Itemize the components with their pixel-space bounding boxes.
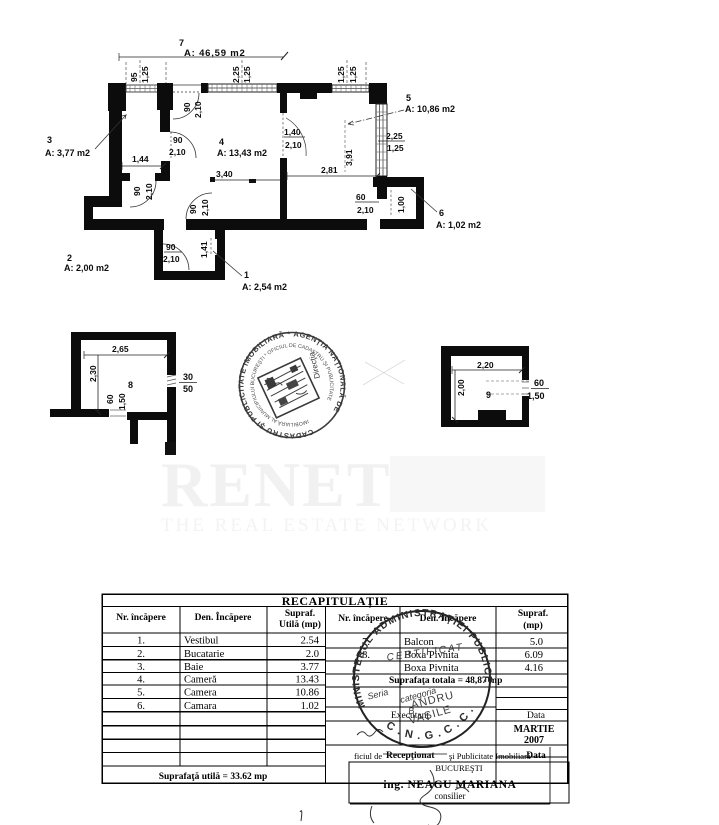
svg-text:90: 90	[182, 102, 192, 112]
svg-text:Camera: Camera	[184, 688, 217, 699]
svg-text:A: 2,00 m2: A: 2,00 m2	[64, 263, 109, 273]
svg-text:6.: 6.	[137, 701, 145, 712]
svg-text:8: 8	[128, 380, 133, 390]
svg-text:1.02: 1.02	[301, 701, 319, 712]
svg-text:2: 2	[67, 253, 72, 263]
svg-text:Data: Data	[527, 711, 546, 721]
svg-text:2.0: 2.0	[306, 649, 319, 660]
svg-text:4.16: 4.16	[525, 663, 543, 674]
svg-text:5: 5	[406, 93, 411, 103]
svg-text:2,20: 2,20	[477, 360, 494, 370]
svg-text:consilier: consilier	[435, 791, 466, 801]
svg-text:şi Publicitate Imobiliară: şi Publicitate Imobiliară	[449, 751, 531, 761]
svg-text:2,00: 2,00	[456, 379, 466, 396]
svg-text:2.54: 2.54	[301, 636, 320, 647]
svg-text:50: 50	[183, 384, 193, 394]
svg-text:1,25: 1,25	[387, 143, 404, 153]
svg-text:90: 90	[132, 186, 142, 196]
svg-text:Supraf.: Supraf.	[518, 609, 548, 619]
svg-text:ficiul de: ficiul de	[354, 751, 382, 761]
svg-text:90: 90	[188, 204, 198, 214]
svg-text:Vestibul: Vestibul	[184, 636, 219, 647]
svg-text:13.43: 13.43	[295, 675, 319, 686]
svg-text:2,25: 2,25	[231, 66, 241, 83]
svg-text:4.: 4.	[137, 675, 145, 686]
svg-text:Suprafaţă utilă = 33.62 mp: Suprafaţă utilă = 33.62 mp	[159, 772, 268, 782]
svg-text:10.86: 10.86	[295, 688, 319, 699]
svg-text:3,40: 3,40	[216, 169, 233, 179]
svg-text:1,44: 1,44	[132, 154, 149, 164]
svg-text:3: 3	[47, 135, 52, 145]
svg-text:Utilă (mp): Utilă (mp)	[279, 619, 321, 630]
svg-text:7: 7	[179, 38, 184, 48]
svg-text:Boxa Pivnita: Boxa Pivnita	[404, 663, 459, 674]
svg-text:2,10: 2,10	[169, 147, 186, 157]
svg-text:A: 3,77 m2: A: 3,77 m2	[45, 148, 90, 158]
svg-text:Bucatarie: Bucatarie	[184, 649, 225, 660]
svg-text:3,91: 3,91	[344, 149, 354, 166]
svg-text:BUCUREŞTI: BUCUREŞTI	[435, 763, 482, 773]
svg-text:2,30: 2,30	[88, 365, 98, 382]
svg-text:3.: 3.	[137, 662, 145, 673]
svg-text:A: 2,54 m2: A: 2,54 m2	[242, 282, 287, 292]
svg-text:Supraf.: Supraf.	[285, 609, 315, 619]
svg-text:ing. NEAGU MARIANA: ing. NEAGU MARIANA	[383, 779, 516, 791]
svg-text:2,10: 2,10	[357, 205, 374, 215]
svg-text:1: 1	[244, 270, 249, 280]
svg-text:1,25: 1,25	[140, 66, 150, 83]
svg-text:2,81: 2,81	[321, 165, 338, 175]
svg-text:95: 95	[129, 72, 139, 82]
svg-text:4: 4	[219, 137, 224, 147]
svg-text:A: 1,02 m2: A: 1,02 m2	[436, 220, 481, 230]
svg-text:1,41: 1,41	[199, 241, 209, 258]
svg-text:60: 60	[356, 192, 366, 202]
svg-text:6: 6	[439, 208, 444, 218]
svg-text:2,10: 2,10	[163, 254, 180, 264]
svg-text:Den. Încăpere: Den. Încăpere	[195, 611, 252, 623]
svg-text:1,50: 1,50	[527, 391, 545, 401]
svg-text:THE REAL ESTATE NETWORK: THE REAL ESTATE NETWORK	[161, 515, 492, 536]
svg-text:2007: 2007	[524, 735, 544, 746]
svg-text:(mp): (mp)	[523, 620, 543, 631]
svg-text:1.: 1.	[137, 636, 145, 647]
svg-text:6.09: 6.09	[525, 650, 543, 661]
svg-text:MARTIE: MARTIE	[514, 724, 555, 735]
svg-text:60: 60	[105, 394, 115, 404]
svg-text:1,25: 1,25	[336, 66, 346, 83]
svg-text:2,10: 2,10	[144, 183, 154, 200]
svg-text:1,25: 1,25	[242, 66, 252, 83]
svg-text:3.77: 3.77	[301, 662, 319, 673]
svg-text:90: 90	[166, 242, 176, 252]
svg-text:90: 90	[173, 135, 183, 145]
svg-text:2,65: 2,65	[112, 344, 129, 354]
svg-text:Recepţionat: Recepţionat	[386, 751, 435, 761]
svg-text:2,25: 2,25	[386, 131, 403, 141]
svg-text:2.: 2.	[137, 649, 145, 660]
svg-text:2,10: 2,10	[193, 101, 203, 118]
svg-text:2,10: 2,10	[285, 140, 302, 150]
svg-text:1,50: 1,50	[117, 393, 127, 410]
svg-text:30: 30	[183, 372, 193, 382]
svg-text:9: 9	[486, 390, 491, 400]
svg-text:RENET: RENET	[161, 449, 392, 520]
svg-text:5.0: 5.0	[530, 637, 543, 648]
svg-text:Seria: Seria	[366, 687, 389, 702]
svg-text:1,00: 1,00	[396, 196, 406, 213]
svg-text:A: 10,86 m2: A: 10,86 m2	[405, 104, 455, 114]
svg-text:Camara: Camara	[184, 701, 217, 712]
svg-text:5.: 5.	[137, 688, 145, 699]
svg-text:Nr. încăpere: Nr. încăpere	[116, 613, 166, 623]
svg-text:Cameră: Cameră	[184, 675, 217, 686]
svg-text:Baie: Baie	[184, 662, 204, 673]
svg-text:A: 13,43 m2: A: 13,43 m2	[217, 148, 267, 158]
svg-text:1,25: 1,25	[348, 66, 358, 83]
svg-text:60: 60	[534, 378, 544, 388]
svg-text:2,10: 2,10	[200, 199, 210, 216]
